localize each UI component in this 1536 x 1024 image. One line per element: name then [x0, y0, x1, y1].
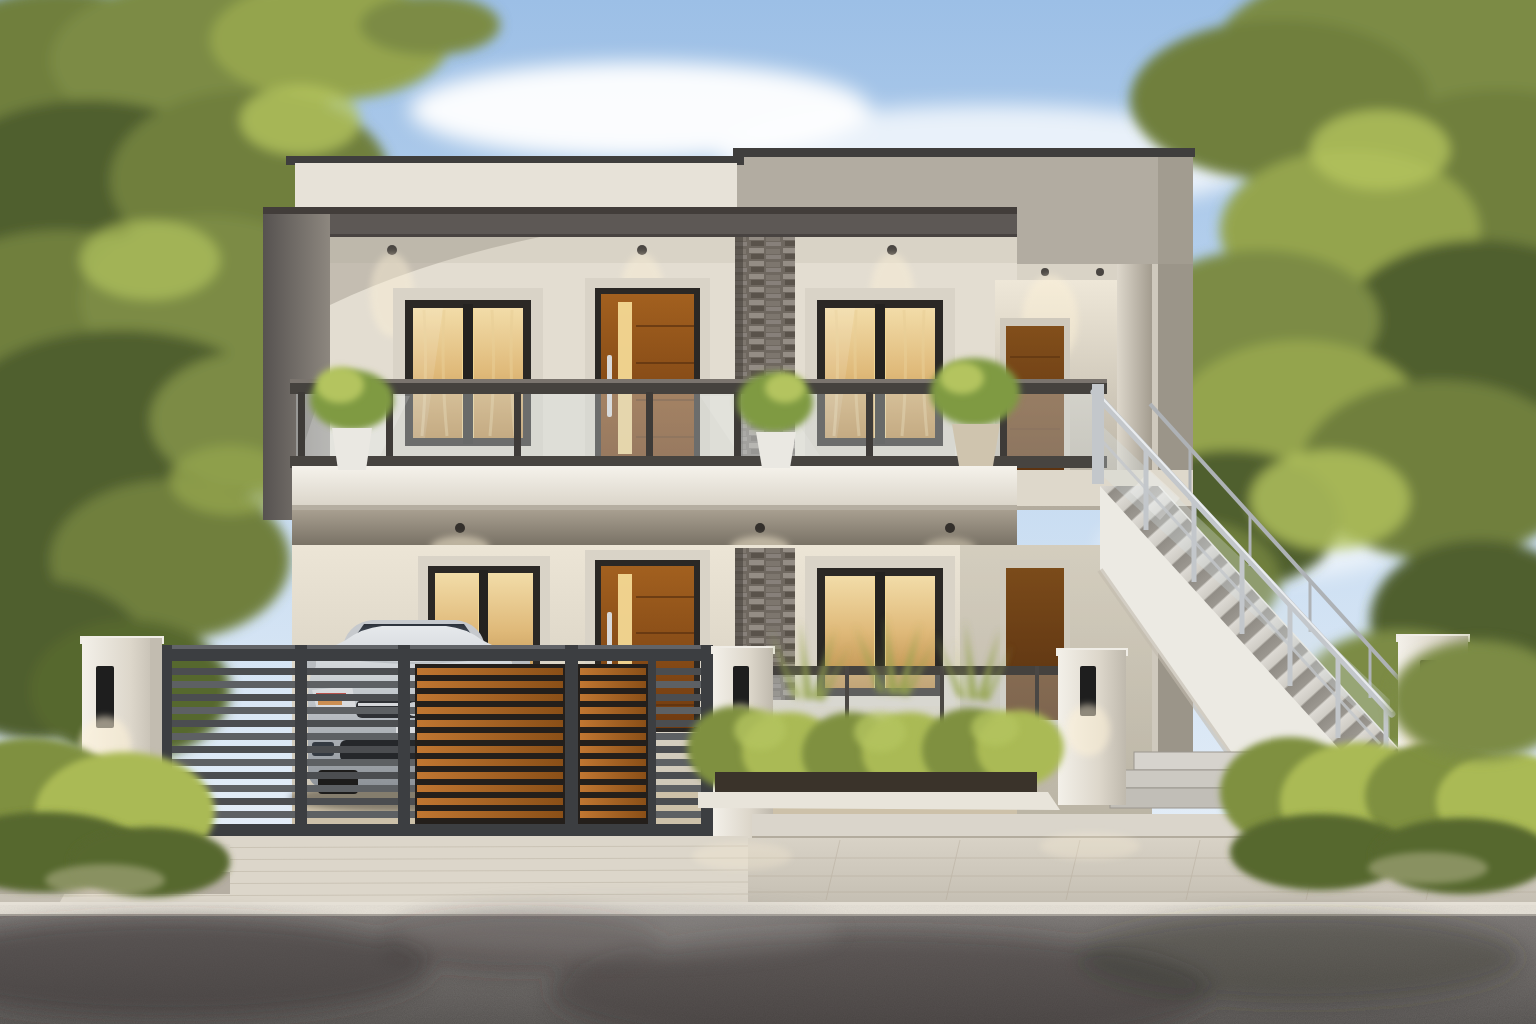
carport-ceiling: [292, 510, 1017, 548]
left-parapet: [295, 163, 737, 207]
stair-start-post: [1092, 384, 1104, 484]
pedestrian-gate-wood: [578, 664, 648, 836]
gate-wood-section: [415, 664, 565, 836]
planter-soil: [715, 772, 1037, 794]
balcony-slab: [292, 466, 1017, 510]
render-stage: [0, 0, 1536, 1024]
planter-curb: [698, 792, 1060, 810]
fascia-shadow: [263, 234, 1017, 237]
tall-roof-cap: [733, 148, 1195, 157]
road-light-patch: [400, 902, 840, 958]
tall-roof-shade: [1158, 157, 1193, 264]
fascia-lip: [263, 207, 1017, 214]
house-exterior-render: [0, 0, 1536, 1024]
pillar-right-inner: [1056, 648, 1128, 805]
sconce-glow: [1066, 704, 1110, 756]
balcony: [290, 358, 1193, 511]
